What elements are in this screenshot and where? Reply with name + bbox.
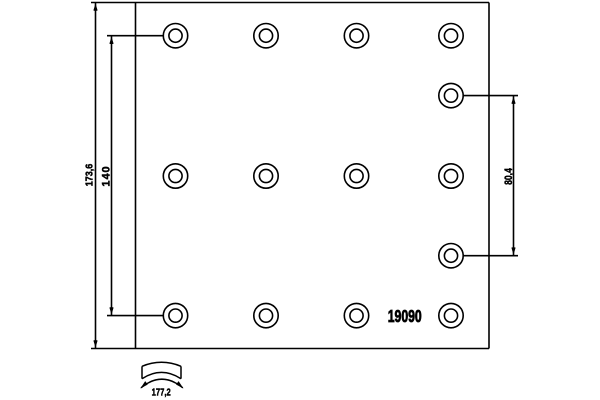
svg-text:80,4: 80,4 [503,168,515,185]
svg-text:140: 140 [100,165,112,186]
svg-text:177,2: 177,2 [152,386,171,397]
svg-text:173,6: 173,6 [84,164,96,186]
svg-text:19090: 19090 [388,307,422,327]
